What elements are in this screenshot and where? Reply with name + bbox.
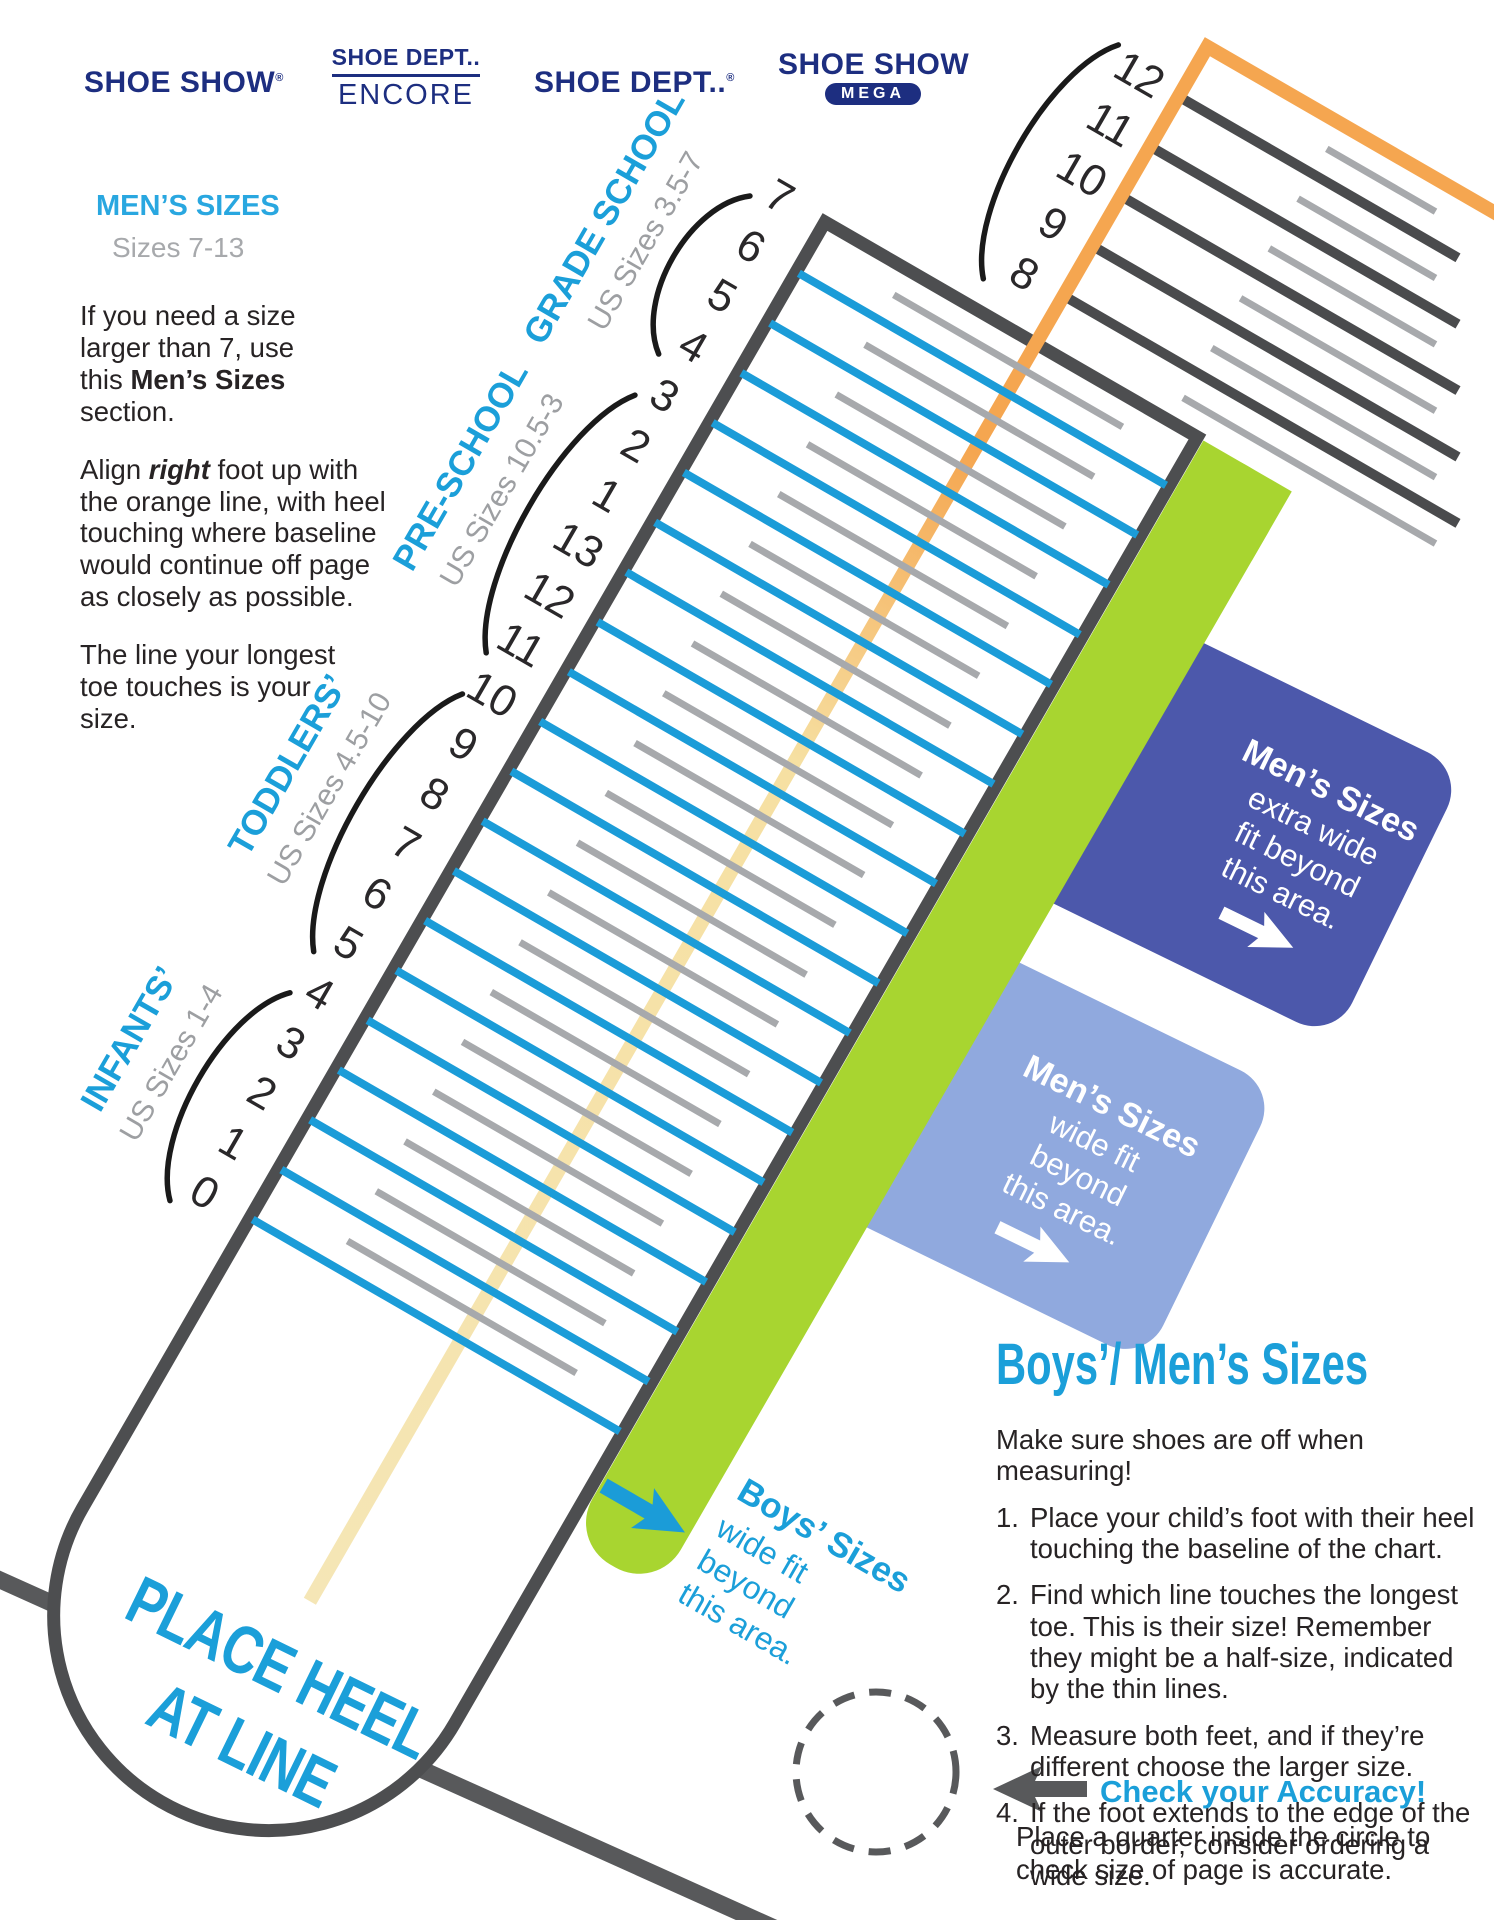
logo-shoe-show: SHOE SHOW® [84, 66, 284, 100]
mens-sizes-paragraph-1: If you need a size larger than 7, use th… [80, 300, 330, 428]
paragraph-text: section. [80, 396, 175, 427]
paragraph-bold-text: Men’s Sizes [130, 364, 285, 395]
registered-mark: ® [275, 72, 284, 84]
size-number: 6 [354, 867, 400, 922]
size-number: 13 [545, 512, 612, 579]
logo-shoe-dept-encore-top: SHOE DEPT.. [332, 44, 481, 77]
logo-shoe-show-text: SHOE SHOW [84, 66, 275, 99]
size-number: 4 [670, 319, 716, 374]
size-number: 8 [412, 767, 458, 822]
mens-size-number: 10 [1048, 141, 1115, 208]
mens-sizes-panel: MEN’S SIZES Sizes 7-13 If you need a siz… [80, 190, 400, 735]
logo-encore-text: ENCORE [326, 79, 486, 112]
instructions-intro: Make sure shoes are off when measuring! [996, 1424, 1478, 1487]
mens-half-size-line [1212, 348, 1436, 477]
boys-wide-callout: Boys’ Sizes wide fit beyond this area. [672, 1471, 918, 1703]
mega-badge: MEGA [825, 83, 921, 105]
logo-shoe-dept: SHOE DEPT..® [534, 66, 735, 100]
size-number: 7 [757, 169, 803, 224]
size-number: 12 [516, 562, 583, 629]
logo-shoe-show-mega: SHOE SHOW MEGA [778, 48, 968, 105]
mens-sizes-paragraph-3: The line your longest toe touches is you… [80, 639, 350, 735]
item-text: Find which line touches the longest toe.… [1030, 1579, 1478, 1704]
size-number: 2 [613, 418, 659, 473]
mens-size-number: 8 [1001, 247, 1047, 302]
size-number: 9 [440, 717, 486, 772]
size-number: 0 [182, 1165, 228, 1220]
size-number: 6 [728, 219, 774, 274]
size-number: 11 [489, 612, 553, 677]
item-text: Place your child’s foot with their heel … [1030, 1502, 1478, 1565]
size-number: 1 [584, 468, 630, 523]
size-number: 10 [459, 661, 526, 728]
size-number: 4 [297, 966, 343, 1021]
mens-half-size-line [1241, 298, 1436, 411]
size-number: 3 [642, 369, 688, 424]
accuracy-title: Check your Accuracy! [1100, 1774, 1426, 1810]
paragraph-text: Align [80, 454, 149, 485]
mens-sizes-subtitle: Sizes 7-13 [112, 232, 400, 264]
item-number: 2. [996, 1579, 1030, 1704]
quarter-check-circle [796, 1692, 956, 1852]
size-number: 1 [210, 1116, 256, 1171]
registered-mark: ® [726, 72, 735, 84]
instructions-heading: Boys’/ Men’s Sizes [996, 1336, 1343, 1394]
item-number: 3. [996, 1720, 1030, 1783]
mens-sizes-paragraph-2: Align right foot up with the orange line… [80, 454, 392, 613]
mens-size-line [1179, 96, 1458, 257]
shoe-sizing-chart-page: Men’s Sizes extra wide fit beyond this a… [0, 0, 1494, 1920]
mens-size-number: 12 [1106, 41, 1173, 108]
size-number: 2 [239, 1066, 285, 1121]
instruction-item: 2. Find which line touches the longest t… [996, 1579, 1478, 1704]
logo-shoe-show-mega-text: SHOE SHOW [778, 48, 968, 82]
mens-size-number: 9 [1030, 197, 1076, 252]
instruction-item: 1. Place your child’s foot with their he… [996, 1502, 1478, 1565]
logo-shoe-dept-encore: SHOE DEPT.. ENCORE [326, 44, 486, 112]
item-number: 1. [996, 1502, 1030, 1565]
size-number: 5 [699, 269, 745, 324]
accuracy-body: Place a quarter inside the circle to che… [1016, 1820, 1446, 1886]
mens-half-size-line [1327, 149, 1436, 212]
size-number: 3 [268, 1016, 314, 1071]
logo-shoe-dept-text: SHOE DEPT.. [534, 66, 726, 99]
mens-size-number: 11 [1078, 92, 1142, 157]
size-number: 7 [383, 817, 429, 872]
mens-sizes-title: MEN’S SIZES [96, 190, 400, 224]
size-number: 5 [325, 916, 371, 971]
paragraph-bold-italic-text: right [149, 454, 210, 485]
